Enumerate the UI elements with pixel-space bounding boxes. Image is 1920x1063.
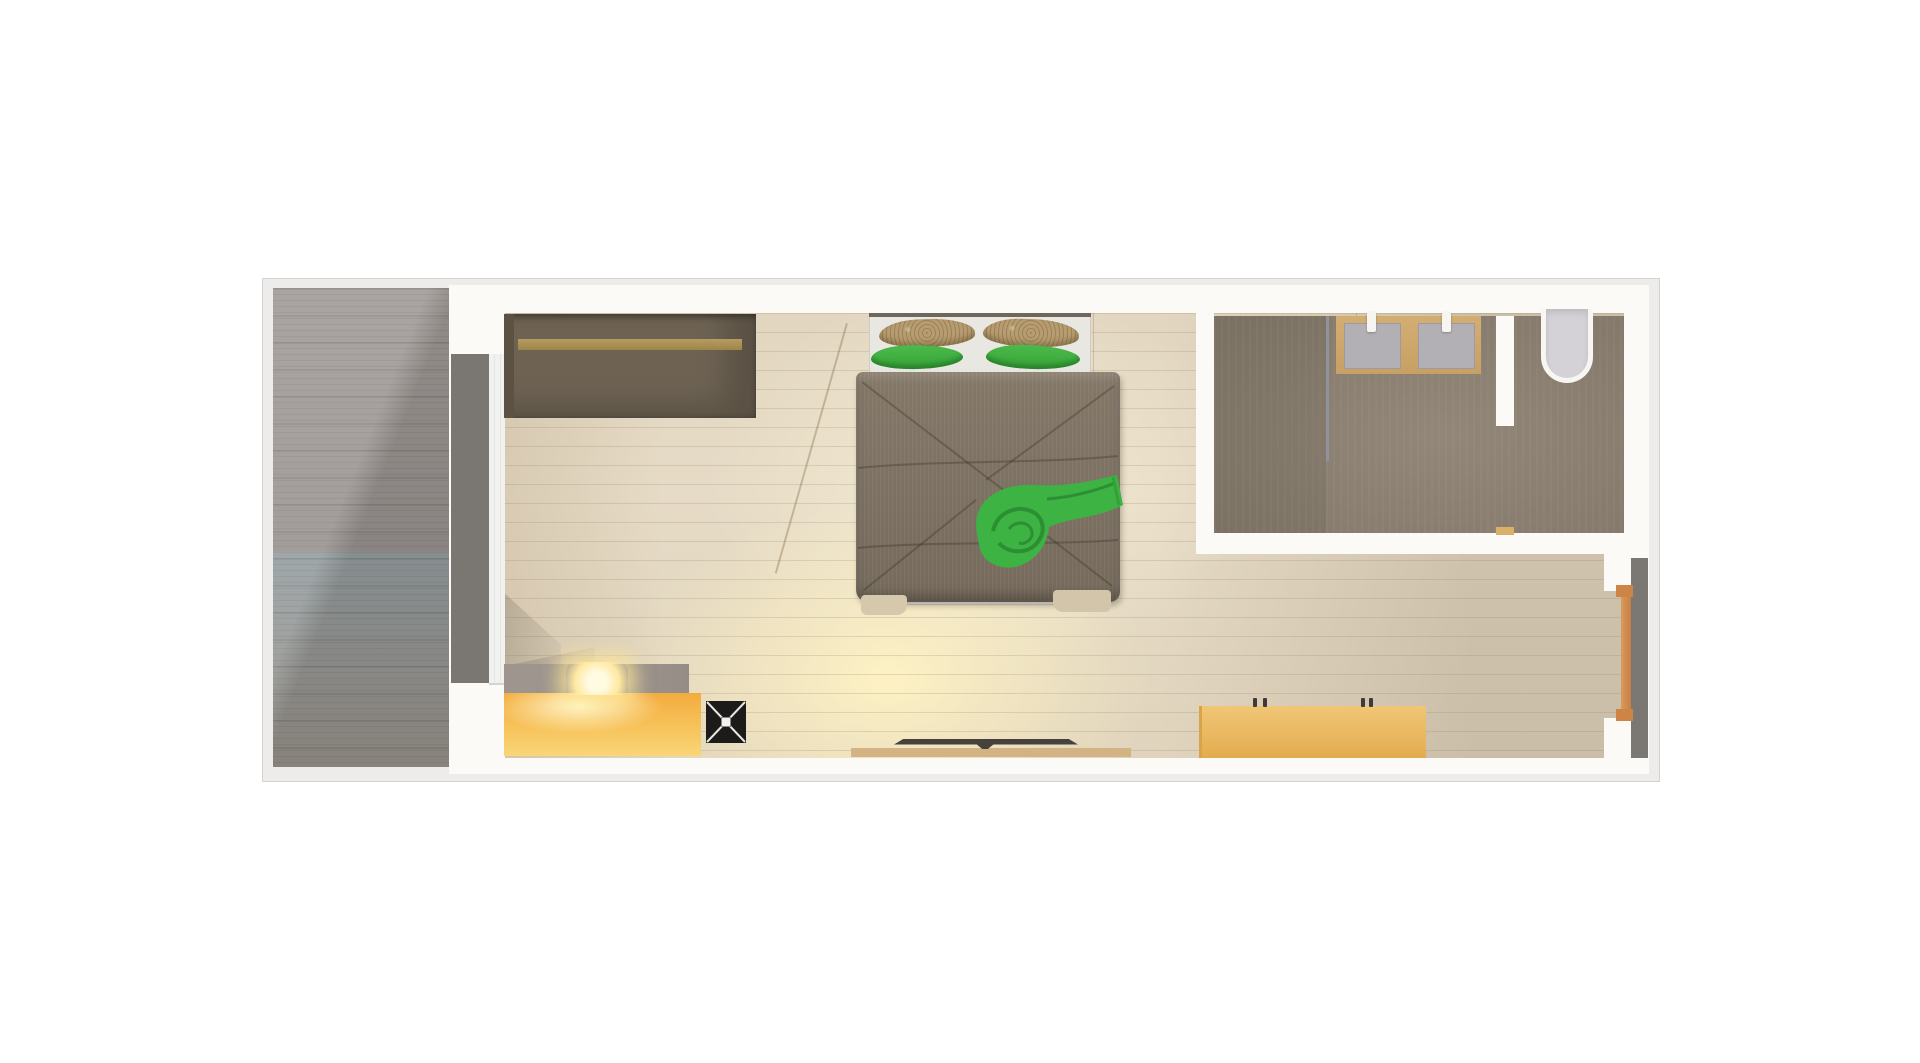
island-knob [1253,698,1257,707]
kitchen-counter-glowing [504,693,701,756]
faucet-right [1442,312,1451,332]
shower-screen [1326,316,1329,461]
island-knob [1263,698,1267,707]
bathroom-partition-wall [1496,316,1514,426]
wardrobe-hanging-rail [518,339,742,350]
bathroom-wall-step [1604,533,1633,591]
wall-shelf [851,748,1131,757]
faucet-left [1367,312,1376,332]
wardrobe-side-panel [504,314,514,418]
wardrobe [504,314,756,418]
bed-foot-corner-right [1053,590,1111,612]
bed-foot-corner-left [861,595,907,615]
bathroom-left-wall [1196,291,1214,533]
kitchen-island [1199,706,1426,758]
floor-plan [262,278,1660,782]
sliding-door-glass [489,354,505,683]
window-door-frame-bottom [1616,709,1633,721]
sliding-door-panel [451,354,489,683]
window-door-right [1621,594,1631,718]
screenshot-canvas [0,0,1920,1063]
island-knob [1369,698,1373,707]
bed-headboard [869,313,1091,317]
bathtub [1541,309,1593,383]
island-knob [1361,698,1365,707]
right-wall-lower [1604,718,1631,774]
stove [706,701,746,743]
right-wall-upper [1624,285,1649,533]
right-exterior-wall [1631,558,1648,758]
deck-shadow-overlay [273,288,449,767]
window-door-frame-top [1616,585,1633,597]
bathroom-threshold [1496,527,1514,535]
green-throw-blanket [963,475,1125,581]
bathroom-bottom-wall [1196,533,1604,554]
lamp [566,662,628,695]
shower-zone [1214,316,1326,533]
